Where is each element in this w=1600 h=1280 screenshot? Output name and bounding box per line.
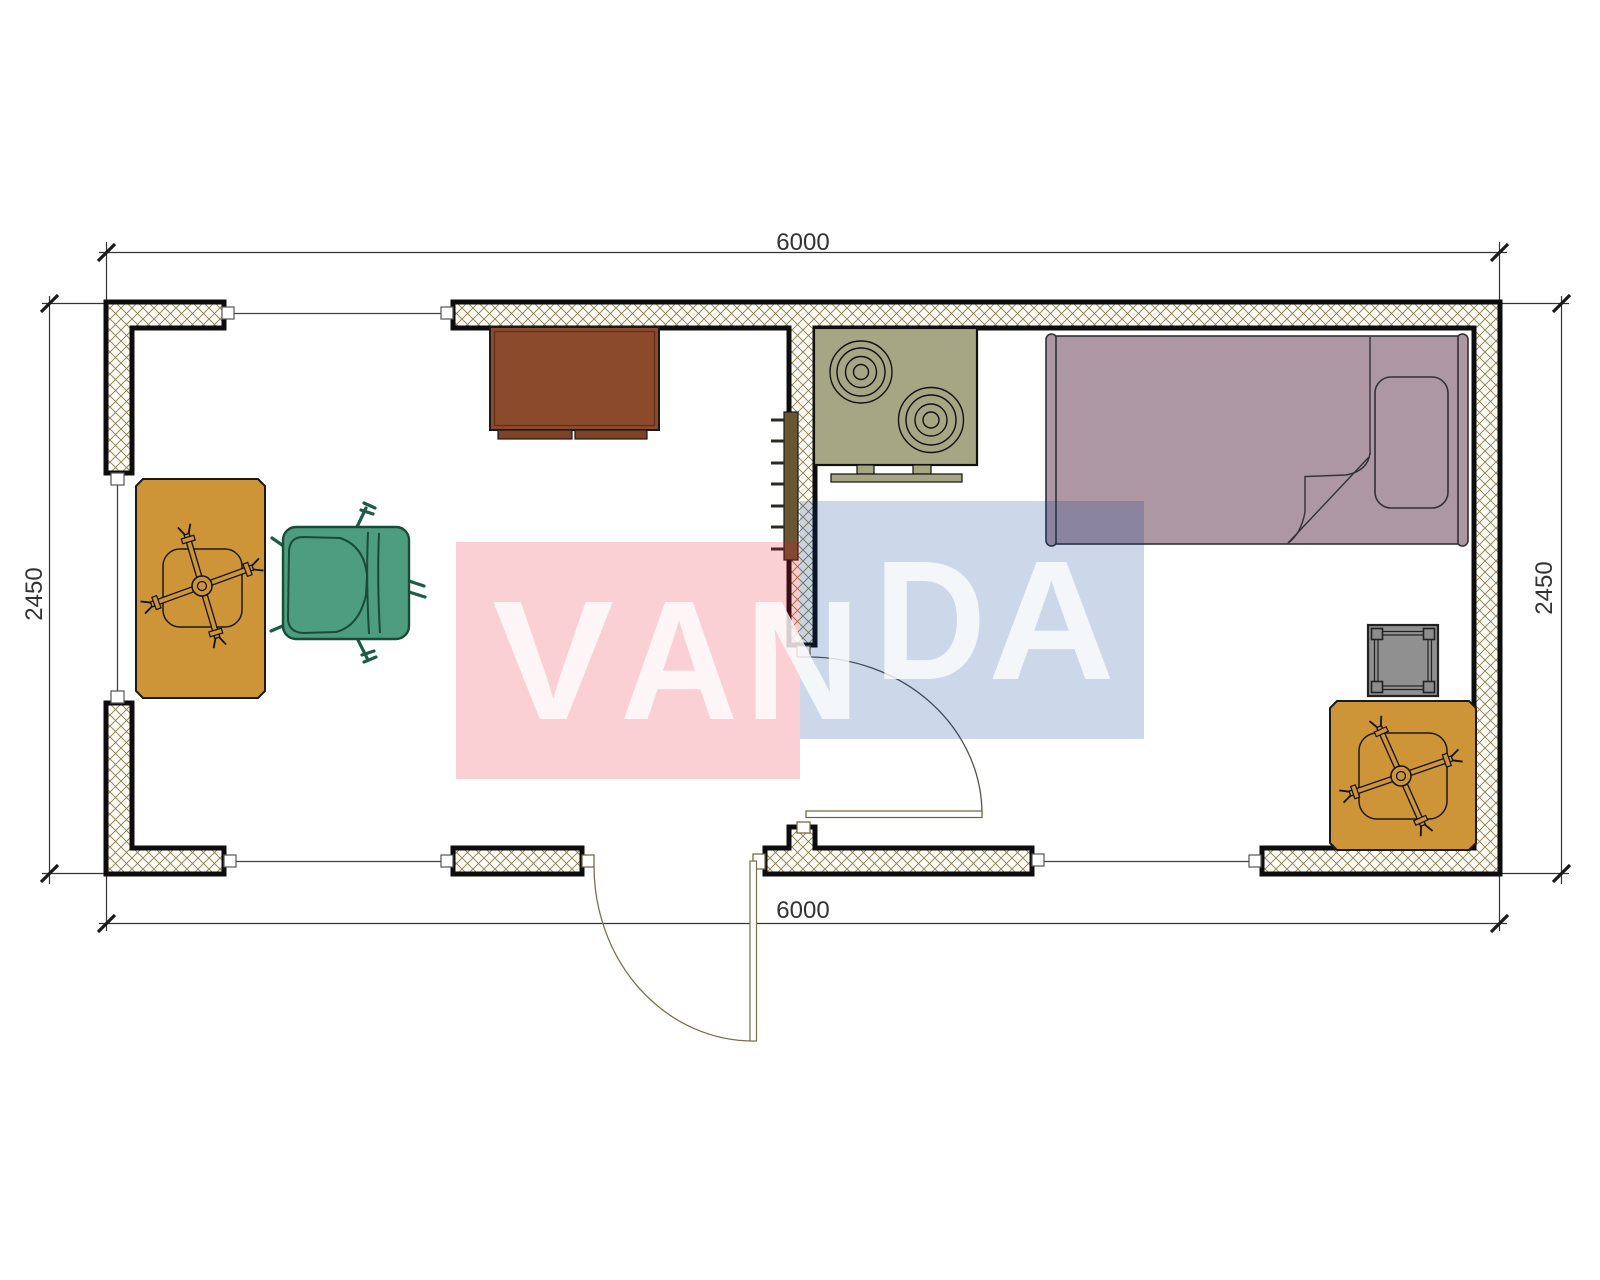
svg-text:6000: 6000: [776, 229, 829, 256]
svg-text:A: A: [620, 566, 738, 756]
svg-text:D: D: [874, 526, 986, 716]
svg-text:6000: 6000: [776, 897, 829, 924]
svg-text:2450: 2450: [21, 567, 48, 620]
svg-text:N: N: [745, 566, 860, 756]
svg-text:2450: 2450: [1531, 561, 1558, 614]
svg-text:V: V: [492, 566, 614, 756]
svg-text:A: A: [988, 526, 1115, 716]
